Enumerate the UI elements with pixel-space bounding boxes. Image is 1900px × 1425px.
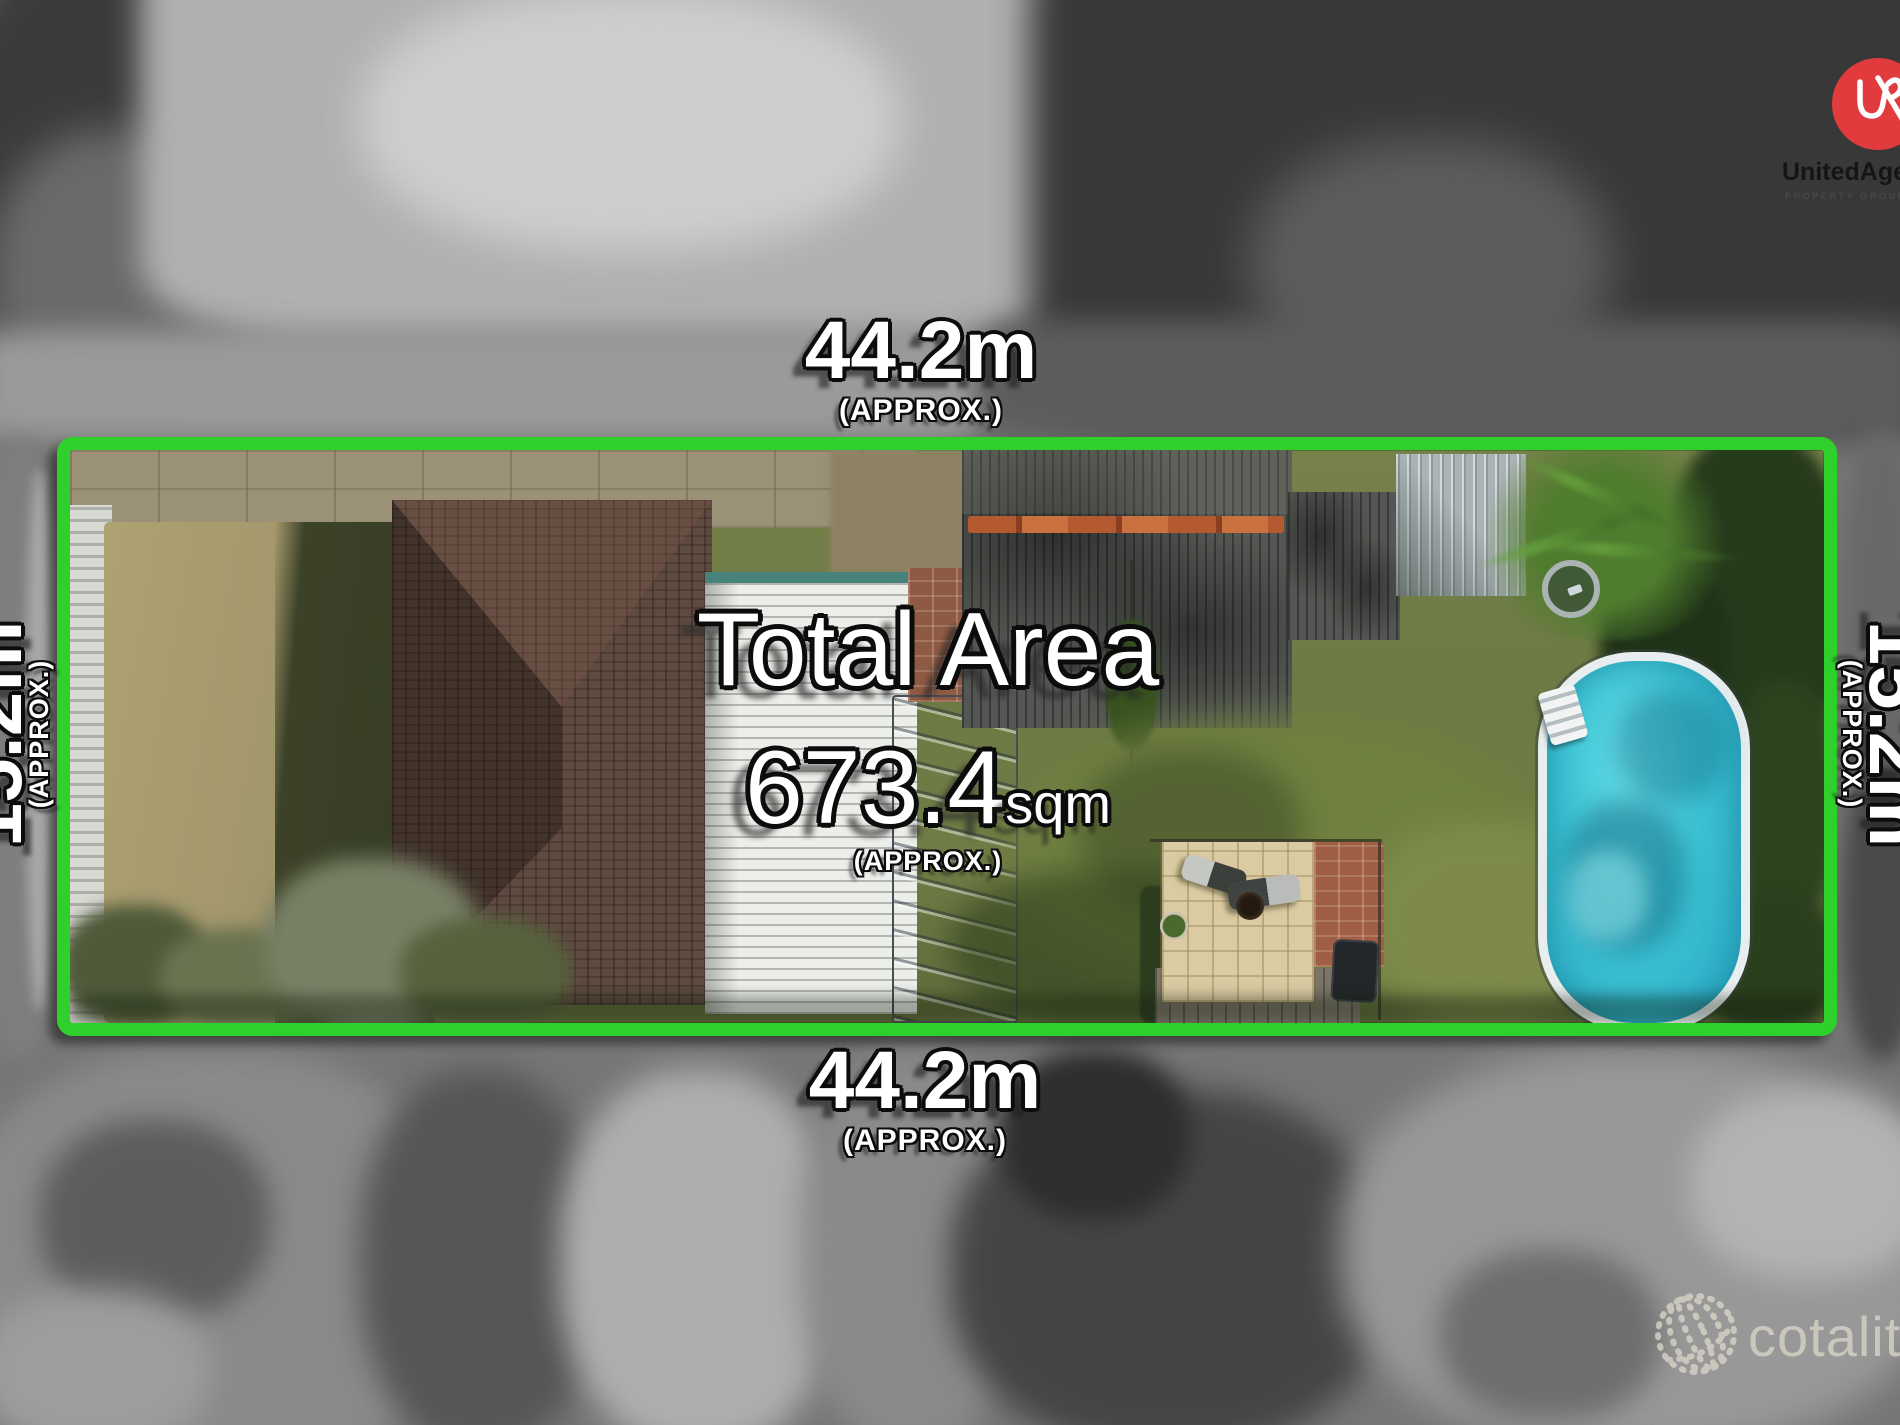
agency-logo: UnitedAgents PROPERTY GROUP [1770,48,1900,218]
dimension-top-value: 44.2m [805,316,1038,386]
fire-pit [1236,892,1264,920]
agency-logo-badge [1832,58,1900,150]
background-bottom-left-light [0,1290,210,1425]
dimension-right: 15.2m (APPROX.) [1814,584,1900,884]
background-band-right [980,320,1900,440]
patio-fence-vertical [1378,842,1381,1020]
total-area-qualifier: (APPROX.) [854,848,1003,875]
total-area-unit: sqm [1005,776,1111,832]
patio-fence-top [1150,839,1382,842]
trampoline-toy [1567,584,1583,596]
total-area-value-row: 673.4sqm [745,736,1111,840]
dimension-left-qualifier: (APPROX.) [26,660,53,809]
pool-shadow-2 [1617,691,1727,801]
background-bottom-light-roof [560,1070,840,1425]
background-big-roof-highlight [360,0,900,250]
palm-canopy [1480,440,1730,640]
garage-roof-moss-band [962,450,1292,514]
watermark-name: cotality [1748,1304,1900,1369]
dimension-top: 44.2m (APPROX.) [805,316,1038,426]
garage-terracotta-ridge [968,516,1284,533]
bottom-tree-shadow-strip [70,995,1824,1023]
trampoline [1542,560,1600,618]
dimension-right-value: 15.2m [1866,621,1900,848]
dimension-right-qualifier: (APPROX.) [1839,660,1866,809]
watermark-globe-icon [1648,1286,1744,1382]
total-area-value: 673.4 [745,736,1005,840]
annex-corrugated-roof [1288,492,1400,640]
total-area-title: Total Area [697,598,1160,702]
background-bottom-right-patch [1440,1250,1660,1420]
agency-tagline: PROPERTY GROUP [1785,191,1900,201]
dimension-bottom-value: 44.2m [809,1046,1042,1116]
potted-plant [1160,912,1188,940]
side-dirt-path [830,450,975,575]
background-bottom-right-light [1690,1090,1900,1280]
dimension-bottom: 44.2m (APPROX.) [809,1046,1042,1156]
watermark-logo: cotality [1648,1282,1900,1402]
dimension-top-qualifier: (APPROX.) [805,396,1038,426]
agency-name: UnitedAgents [1782,158,1900,187]
aerial-property-photo: 44.2m (APPROX.) 44.2m (APPROX.) 15.2m (A… [0,0,1900,1425]
dimension-bottom-qualifier: (APPROX.) [809,1126,1042,1156]
dimension-left-value: 15.2m [0,621,26,848]
pool-glare [1567,851,1647,941]
bbq-grill [1330,939,1379,1003]
white-roof-teal-edge [705,572,917,583]
dimension-left: 15.2m (APPROX.) [0,584,77,884]
agency-monogram-icon [1832,58,1900,150]
